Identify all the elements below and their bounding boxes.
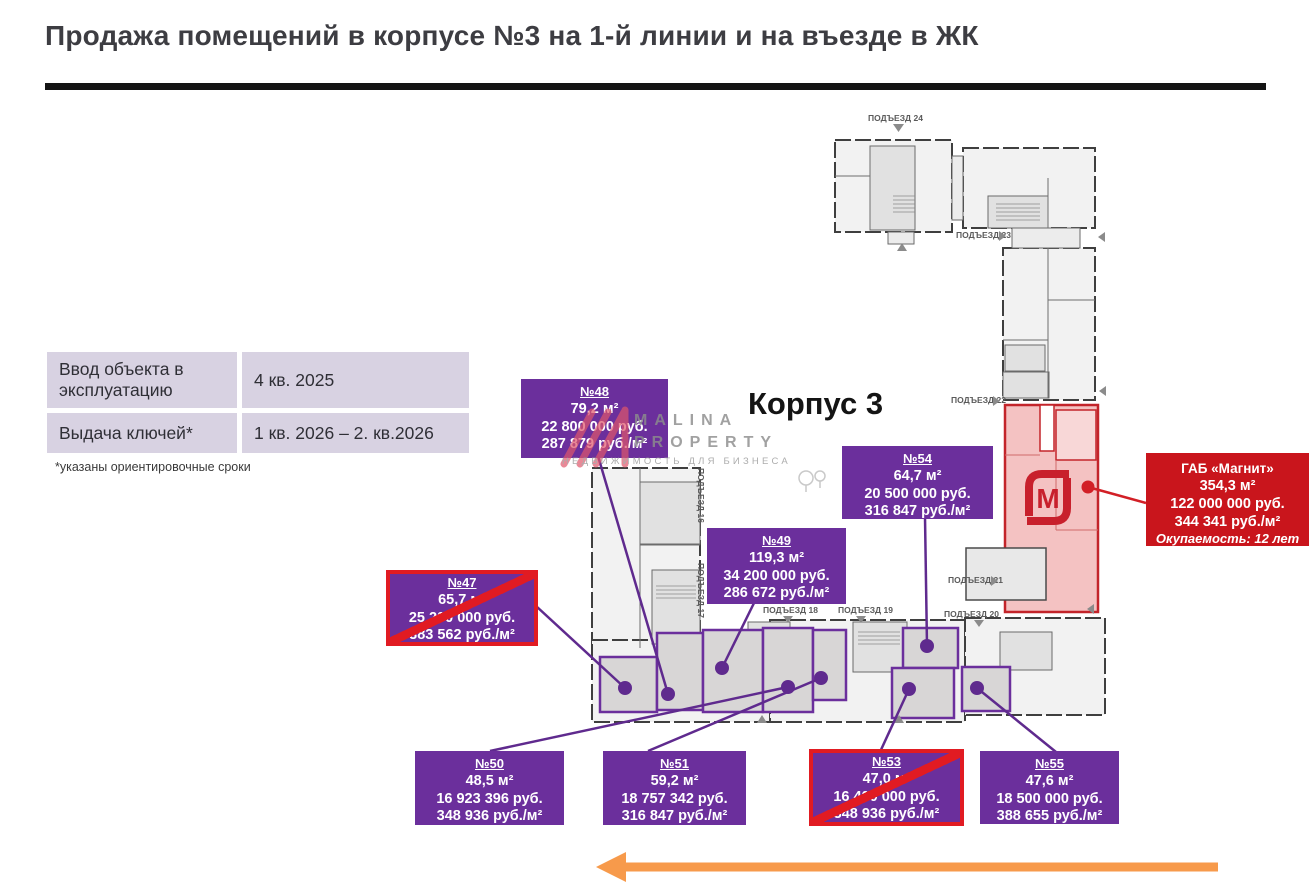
unit-55-shape (962, 667, 1010, 711)
unit-number: №49 (707, 533, 846, 550)
unit-55-marker (970, 681, 984, 695)
gab-magnit-callout: ГАБ «Магнит» 354,3 м² 122 000 000 руб. 3… (1146, 453, 1309, 546)
unit-price: 16 923 396 руб. (415, 791, 564, 809)
unit-callout-51: №51 59,2 м² 18 757 342 руб. 316 847 руб.… (603, 751, 746, 825)
tree-icons (799, 471, 825, 492)
unit-area: 59,2 м² (603, 773, 746, 791)
direction-arrow (596, 852, 1218, 882)
unit-price-per-m2: 348 936 руб./м² (813, 806, 960, 824)
slide: Продажа помещений в корпусе №3 на 1-й ли… (0, 0, 1310, 889)
unit-callout-48: №48 79,2 м² 22 800 000 руб. 287 879 руб.… (521, 379, 668, 458)
unit-53-marker (902, 682, 916, 696)
unit-area: 47,6 м² (980, 773, 1119, 791)
unit-price-per-m2: 383 562 руб./м² (390, 627, 534, 645)
unit-53-shape (892, 668, 954, 718)
unit-price-per-m2: 287 879 руб./м² (521, 436, 668, 454)
unit-price: 22 800 000 руб. (521, 419, 668, 437)
unit-area: 65,7 м² (390, 592, 534, 610)
unit-54-marker (920, 639, 934, 653)
unit-number: №54 (842, 451, 993, 468)
unit-price: 16 400 000 руб. (813, 789, 960, 807)
entrance-label-20: ПОДЪЕЗД 20 (944, 609, 999, 619)
gab-name: ГАБ «Магнит» (1146, 460, 1309, 478)
unit-price: 25 200 000 руб. (390, 610, 534, 628)
unit-price-per-m2: 316 847 руб./м² (842, 503, 993, 521)
unit-49-marker (715, 661, 729, 675)
unit-price: 34 200 000 руб. (707, 568, 846, 586)
unit-area: 79,2 м² (521, 401, 668, 419)
unit-51-marker (814, 671, 828, 685)
unit-number: №51 (603, 756, 746, 773)
magnit-logo-letter: М (1036, 483, 1059, 514)
unit-callout-54: №54 64,7 м² 20 500 000 руб. 316 847 руб.… (842, 446, 993, 519)
unit-number: №53 (813, 754, 960, 771)
building-label: Корпус 3 (748, 386, 883, 422)
entrance-label-18: ПОДЪЕЗД 18 (763, 605, 818, 615)
unit-callout-49: №49 119,3 м² 34 200 000 руб. 286 672 руб… (707, 528, 846, 604)
unit-price: 20 500 000 руб. (842, 486, 993, 504)
unit-area: 119,3 м² (707, 550, 846, 568)
unit-callout-53: №53 47,0 м² 16 400 000 руб. 348 936 руб.… (809, 749, 964, 826)
unit-50-marker (781, 680, 795, 694)
unit-price: 18 757 342 руб. (603, 791, 746, 809)
unit-area: 48,5 м² (415, 773, 564, 791)
unit-price-per-m2: 286 672 руб./м² (707, 585, 846, 603)
unit-number: №47 (390, 575, 534, 592)
unit-callout-47: №47 65,7 м² 25 200 000 руб. 383 562 руб.… (386, 570, 538, 646)
unit-number: №50 (415, 756, 564, 773)
unit-price: 18 500 000 руб. (980, 791, 1119, 809)
entrance-label-19: ПОДЪЕЗД 19 (838, 605, 893, 615)
unit-price-per-m2: 348 936 руб./м² (415, 808, 564, 826)
entrance-label-16: ПОДЪЕЗД 16 (696, 468, 706, 523)
unit-callout-55: №55 47,6 м² 18 500 000 руб. 388 655 руб.… (980, 751, 1119, 824)
unit-callout-50: №50 48,5 м² 16 923 396 руб. 348 936 руб.… (415, 751, 564, 825)
unit-47-marker (618, 681, 632, 695)
entrance-label-17: ПОДЪЕЗД 17 (696, 563, 706, 618)
gab-payback: Окупаемость: 12 лет (1146, 531, 1309, 547)
gab-area: 354,3 м² (1146, 478, 1309, 496)
unit-number: №55 (980, 756, 1119, 773)
gab-price: 122 000 000 руб. (1146, 496, 1309, 514)
unit-price-per-m2: 388 655 руб./м² (980, 808, 1119, 826)
unit-51-shape (813, 630, 846, 700)
unit-area: 47,0 м² (813, 771, 960, 789)
unit-48-marker (661, 687, 675, 701)
gab-price-per-m2: 344 341 руб./м² (1146, 514, 1309, 532)
entrance-label-24: ПОДЪЕЗД 24 (868, 113, 923, 123)
unit-area: 64,7 м² (842, 468, 993, 486)
magnit-marker (1082, 481, 1095, 494)
unit-price-per-m2: 316 847 руб./м² (603, 808, 746, 826)
unit-number: №48 (521, 384, 668, 401)
